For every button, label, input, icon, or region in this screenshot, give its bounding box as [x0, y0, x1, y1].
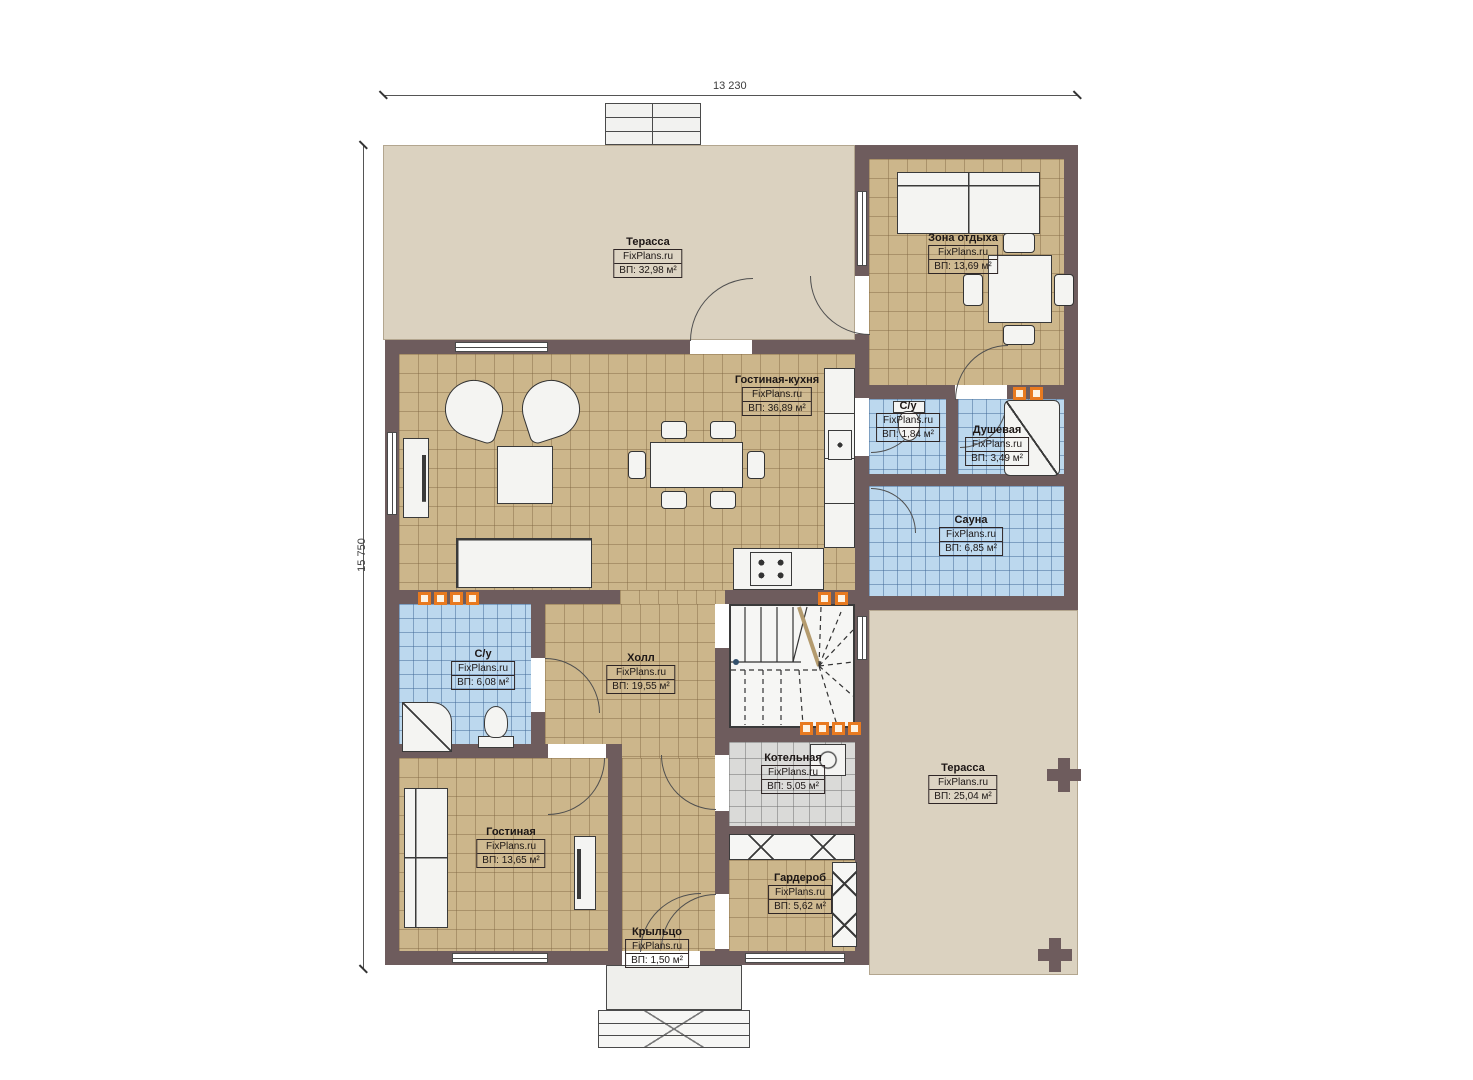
radiator-marker — [466, 592, 479, 605]
wardrobe-cabinet-right — [832, 862, 857, 947]
staircase — [729, 604, 855, 728]
room-label-living-kitchen: Гостиная-кухня FixPlans.ru ВП: 36,89 м² — [735, 374, 819, 416]
window-kitchen-left — [387, 432, 397, 515]
room-area: ВП: 13,65 м² — [477, 854, 544, 867]
room-label-porch: Крыльцо FixPlans.ru ВП: 1,50 м² — [625, 926, 689, 968]
room-area: ВП: 6,08 м² — [452, 676, 514, 689]
door-gap-terrace — [690, 340, 752, 354]
room-area: ВП: 5,62 м² — [769, 900, 831, 913]
dining-table — [650, 442, 743, 488]
room-area: ВП: 3,49 м² — [966, 452, 1028, 465]
room-label-wc-top: С/у FixPlans.ru ВП: 1,84 м² — [876, 400, 940, 442]
room-name: Гостиная-кухня — [735, 374, 819, 386]
brand-watermark: FixPlans.ru — [929, 246, 996, 260]
room-name: С/у — [451, 648, 515, 660]
room-name: Зона отдыха — [928, 232, 998, 244]
door-gap-boiler — [715, 755, 729, 811]
room-name: Душевая — [965, 424, 1029, 436]
wall-boiler-bottom — [729, 826, 869, 834]
window-kitchen-top — [455, 342, 548, 352]
brand-watermark: FixPlans.ru — [966, 438, 1028, 452]
room-area: ВП: 25,04 м² — [929, 790, 996, 803]
room-area: ВП: 6,85 м² — [940, 542, 1002, 555]
room-label-wc-left: С/у FixPlans.ru ВП: 6,08 м² — [451, 648, 515, 690]
radiator-marker — [848, 722, 861, 735]
terrace-column-2 — [1038, 938, 1072, 972]
wall-wing-bottom — [855, 596, 1078, 610]
porch-steps — [598, 1010, 750, 1048]
room-area: ВП: 19,55 м² — [607, 680, 674, 693]
radiator-marker — [816, 722, 829, 735]
brand-watermark: FixPlans.ru — [452, 662, 514, 676]
brand-watermark: FixPlans.ru — [607, 666, 674, 680]
kitchen-hall-opening-floor — [620, 590, 725, 604]
radiator-marker — [835, 592, 848, 605]
radiator-marker — [832, 722, 845, 735]
wardrobe-cabinet-top — [729, 834, 855, 860]
staircase-drawing — [729, 604, 855, 728]
kitchen-sofa — [456, 538, 592, 588]
door-gap-living — [548, 744, 606, 758]
room-label-lounge: Зона отдыха FixPlans.ru ВП: 13,69 м² — [928, 232, 998, 274]
room-area: ВП: 13,69 м² — [929, 260, 996, 273]
brand-watermark: FixPlans.ru — [769, 886, 831, 900]
window-stair-terrace — [857, 616, 867, 660]
porch-slab — [606, 965, 742, 1010]
radiator-marker — [418, 592, 431, 605]
room-area: ВП: 1,50 м² — [626, 954, 688, 967]
brand-watermark: FixPlans.ru — [743, 388, 810, 402]
room-name: Сауна — [939, 514, 1003, 526]
shower-tray-wc-left — [402, 702, 452, 752]
room-name: Котельная — [761, 752, 825, 764]
lounge-chair-top — [1003, 233, 1035, 253]
living-sofa — [404, 788, 448, 928]
door-gap-stairs — [715, 604, 729, 648]
door-gap-wardrobe — [715, 894, 729, 949]
brand-watermark: FixPlans.ru — [929, 776, 996, 790]
radiator-marker — [434, 592, 447, 605]
wall-wing-top — [855, 145, 1078, 159]
lounge-chair-bottom — [1003, 325, 1035, 345]
room-label-terrace-top: Терасса FixPlans.ru ВП: 32,98 м² — [613, 236, 682, 278]
window-wardrobe-bottom — [745, 953, 845, 963]
room-label-living: Гостиная FixPlans.ru ВП: 13,65 м² — [476, 826, 545, 868]
dining-chair-6 — [747, 451, 765, 479]
door-gap-wc-left — [531, 658, 545, 712]
dimension-line — [383, 95, 1078, 96]
floor-plan-canvas: Терасса FixPlans.ru ВП: 32,98 м² Зона от… — [0, 0, 1473, 1080]
room-label-wardrobe: Гардероб FixPlans.ru ВП: 5,62 м² — [768, 872, 832, 914]
lounge-sofa — [897, 172, 1040, 234]
brand-watermark: FixPlans.ru — [614, 250, 681, 264]
dining-chair-2 — [710, 421, 736, 439]
room-label-boiler: Котельная FixPlans.ru ВП: 5,05 м² — [761, 752, 825, 794]
brand-watermark: FixPlans.ru — [940, 528, 1002, 542]
toilet-bowl-wc-left — [484, 706, 508, 738]
brand-watermark: FixPlans.ru — [626, 940, 688, 954]
room-name: Холл — [606, 652, 675, 664]
room-area: ВП: 36,89 м² — [743, 402, 810, 415]
room-name: Терасса — [928, 762, 997, 774]
wall-wing-right — [1064, 145, 1078, 610]
window-living-bottom — [452, 953, 548, 963]
wall-wc-shower — [946, 399, 958, 486]
dimension-height-label: 15 750 — [356, 538, 368, 572]
wall-hall-living — [608, 758, 622, 951]
radiator-marker — [450, 592, 463, 605]
room-label-terrace-right: Терасса FixPlans.ru ВП: 25,04 м² — [928, 762, 997, 804]
room-name: Терасса — [613, 236, 682, 248]
brand-watermark: FixPlans.ru — [477, 840, 544, 854]
radiator-marker — [800, 722, 813, 735]
tv-unit-living — [574, 836, 596, 910]
room-name: Крыльцо — [625, 926, 689, 938]
terrace-column-1 — [1047, 758, 1081, 792]
dining-chair-5 — [628, 451, 646, 479]
tv-unit-kitchen — [403, 438, 429, 518]
dining-chair-1 — [661, 421, 687, 439]
dining-chair-4 — [710, 491, 736, 509]
dimension-width-label: 13 230 — [713, 80, 747, 92]
door-gap-kitchen-wc — [855, 398, 869, 456]
room-name: Гостиная — [476, 826, 545, 838]
wall-kitchen-hall — [399, 590, 620, 604]
radiator-marker — [1030, 387, 1043, 400]
brand-watermark: FixPlans.ru — [877, 414, 939, 428]
kitchen-sink — [828, 430, 852, 460]
dining-chair-3 — [661, 491, 687, 509]
room-area: ВП: 5,05 м² — [762, 780, 824, 793]
room-name: Гардероб — [768, 872, 832, 884]
room-label-sauna: Сауна FixPlans.ru ВП: 6,85 м² — [939, 514, 1003, 556]
lounge-chair-left — [963, 274, 983, 306]
room-label-hall: Холл FixPlans.ru ВП: 19,55 м² — [606, 652, 675, 694]
brand-watermark: FixPlans.ru — [762, 766, 824, 780]
room-label-shower-room: Душевая FixPlans.ru ВП: 3,49 м² — [965, 424, 1029, 466]
radiator-marker — [818, 592, 831, 605]
skylight-block — [605, 103, 701, 145]
radiator-marker — [1013, 387, 1026, 400]
lounge-chair-right — [1054, 274, 1074, 306]
coffee-table — [497, 446, 553, 504]
room-area: ВП: 32,98 м² — [614, 264, 681, 277]
stove — [750, 552, 792, 586]
window-lounge-terrace — [857, 191, 867, 266]
dimension-left: 15 750 — [350, 145, 370, 970]
room-area: ВП: 1,84 м² — [877, 428, 939, 441]
dimension-top: 13 230 — [383, 80, 1078, 100]
room-name: С/у — [876, 400, 940, 412]
